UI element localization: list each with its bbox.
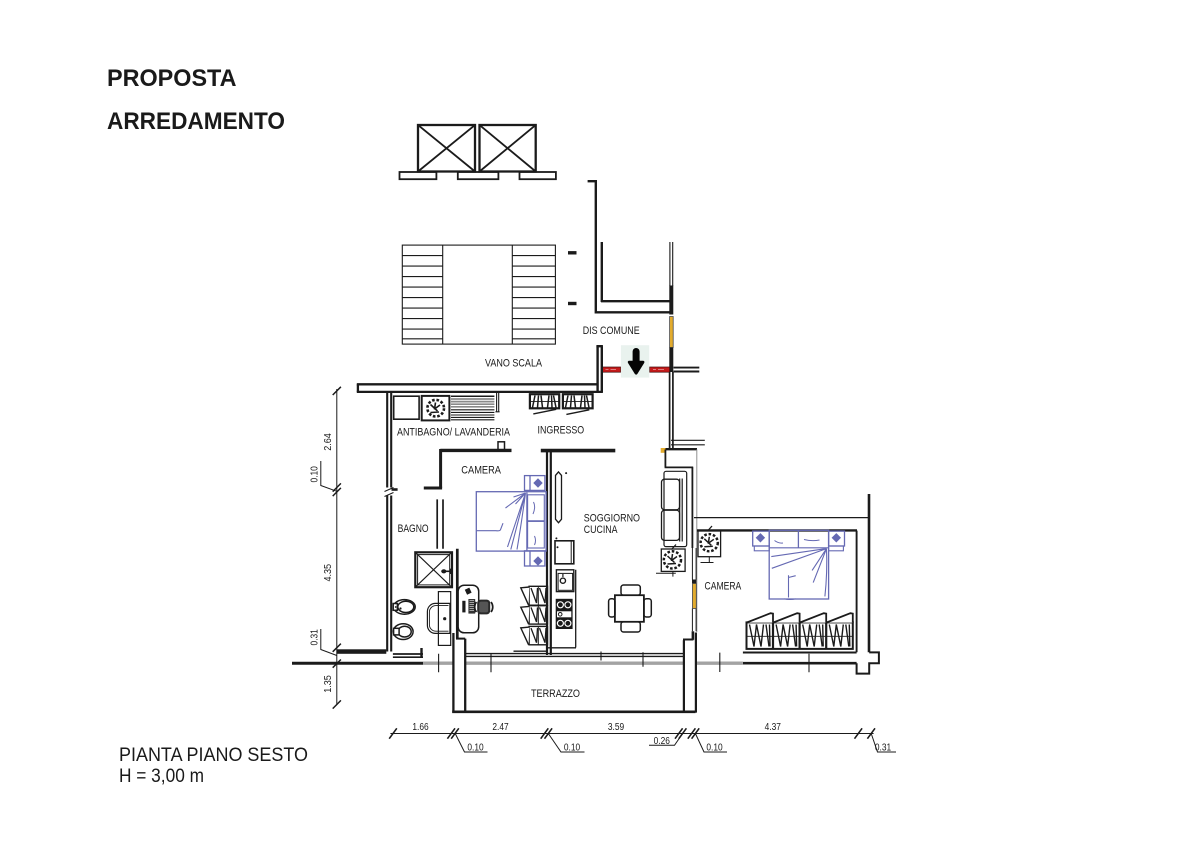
svg-text:SOGGIORNO: SOGGIORNO [584, 512, 641, 524]
svg-text:0.31: 0.31 [309, 629, 320, 645]
svg-text:3.59: 3.59 [608, 722, 624, 733]
svg-text:2.47: 2.47 [492, 722, 508, 733]
svg-text:TERRAZZO: TERRAZZO [531, 688, 580, 700]
svg-text:0.10: 0.10 [706, 743, 723, 754]
svg-text:2.64: 2.64 [323, 433, 334, 451]
svg-text:VANO SCALA: VANO SCALA [485, 357, 543, 369]
svg-text:PIANTA PIANO SESTO: PIANTA PIANO SESTO [119, 744, 308, 766]
svg-text:H = 3,00 m: H = 3,00 m [119, 765, 204, 787]
svg-text:1.35: 1.35 [323, 675, 334, 693]
svg-text:INGRESSO: INGRESSO [538, 424, 585, 436]
svg-text:0.10: 0.10 [309, 466, 320, 483]
svg-text:DIS COMUNE: DIS COMUNE [583, 325, 640, 337]
svg-text:CAMERA: CAMERA [705, 581, 742, 593]
svg-text:ARREDAMENTO: ARREDAMENTO [107, 108, 285, 135]
svg-text:4.37: 4.37 [765, 722, 781, 733]
svg-text:0.26: 0.26 [654, 736, 671, 747]
svg-text:0.10: 0.10 [564, 743, 581, 754]
svg-text:PROPOSTA: PROPOSTA [107, 65, 237, 92]
svg-text:BAGNO: BAGNO [398, 523, 429, 535]
svg-text:0.10: 0.10 [467, 743, 484, 754]
svg-text:1.66: 1.66 [412, 722, 429, 733]
svg-text:0.31: 0.31 [875, 743, 891, 754]
svg-text:CUCINA: CUCINA [584, 524, 618, 536]
svg-text:4.35: 4.35 [323, 563, 334, 581]
svg-text:ANTIBAGNO/ LAVANDERIA: ANTIBAGNO/ LAVANDERIA [397, 426, 511, 438]
svg-text:CAMERA: CAMERA [461, 464, 501, 476]
